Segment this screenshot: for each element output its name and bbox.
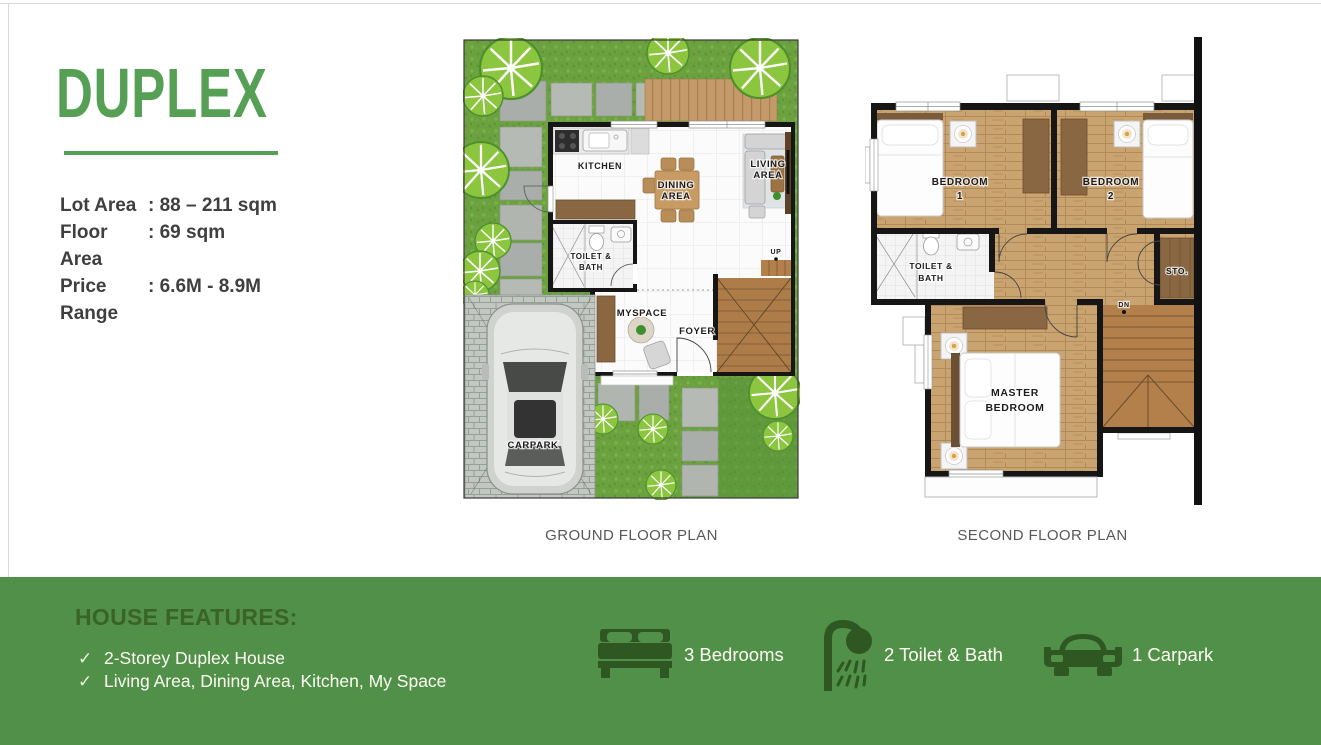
check-icon: ✓ (78, 647, 104, 670)
room-label-toilet: BATH (579, 263, 603, 272)
room-label-dn: DN (1118, 302, 1129, 309)
carpark-area (465, 295, 595, 498)
spec-list: Lot Area : 88 – 211 sqm Floor Area : 69 … (60, 192, 277, 327)
feature-item-label: Living Area, Dining Area, Kitchen, My Sp… (104, 670, 446, 693)
features-heading: HOUSE FEATURES: (75, 604, 298, 631)
room-label-dining: AREA (661, 191, 690, 202)
room-label-storage: STO. (1166, 266, 1188, 276)
spec-value: : 6.6M - 8.9M (148, 273, 261, 327)
spec-label: Floor Area (60, 219, 148, 273)
slide-left-border (8, 3, 9, 577)
room-label-toilet: BATH (918, 273, 943, 283)
room-label-toilet: TOILET & (909, 261, 952, 271)
spec-value: : 88 – 211 sqm (148, 192, 277, 219)
ground-floor-plan: KITCHEN DINING AREA LIVING AREA TOILET &… (463, 38, 800, 500)
room-label-myspace: MYSPACE (617, 308, 667, 319)
car-icon (1044, 628, 1122, 678)
spec-row-price-range: Price Range : 6.6M - 8.9M (60, 273, 277, 327)
feature-item: ✓ Living Area, Dining Area, Kitchen, My … (78, 670, 446, 693)
slide-top-border (0, 3, 1321, 4)
party-wall (1194, 37, 1202, 505)
spec-row-floor-area: Floor Area : 69 sqm (60, 219, 277, 273)
brochure-slide: { "panel": { "title": "DUPLEX", "specs":… (0, 0, 1321, 745)
room-label-living: AREA (753, 170, 782, 181)
second-floor-plan: BEDROOM 1 BEDROOM 2 TOILET & BATH STO. D… (865, 35, 1210, 510)
room-label-bedroom1: BEDROOM (932, 177, 988, 188)
room-label-bedroom2: BEDROOM (1083, 177, 1139, 188)
stat-carpark: 1 Carpark (1132, 644, 1213, 666)
room-label-master: BEDROOM (985, 402, 1044, 414)
spec-row-lot-area: Lot Area : 88 – 211 sqm (60, 192, 277, 219)
room-label-living: LIVING (750, 159, 785, 170)
feature-item-label: 2-Storey Duplex House (104, 647, 285, 670)
room-label-carpark: CARPARK (508, 440, 559, 451)
check-icon: ✓ (78, 670, 104, 693)
page-title: DUPLEX (56, 58, 268, 128)
ground-floor-caption: GROUND FLOOR PLAN (463, 527, 800, 544)
spec-label: Price Range (60, 273, 148, 327)
car-top-view (482, 304, 588, 494)
spec-label: Lot Area (60, 192, 148, 219)
room-label-dining: DINING (658, 180, 695, 191)
stat-bedrooms: 3 Bedrooms (684, 644, 784, 666)
room-label-kitchen: KITCHEN (578, 161, 622, 171)
stat-toilet-bath: 2 Toilet & Bath (884, 644, 1003, 666)
title-underline (64, 151, 278, 155)
shower-icon (820, 617, 876, 693)
spec-value: : 69 sqm (148, 219, 225, 273)
feature-item: ✓ 2-Storey Duplex House (78, 647, 285, 670)
room-label-bedroom1: 1 (957, 191, 963, 202)
second-floor-caption: SECOND FLOOR PLAN (870, 527, 1215, 544)
room-label-up: UP (771, 249, 782, 256)
room-label-master: MASTER (991, 387, 1039, 399)
room-label-foyer: FOYER (679, 326, 715, 337)
room-label-bedroom2: 2 (1108, 191, 1114, 202)
bed-icon (598, 629, 672, 679)
room-label-toilet: TOILET & (570, 252, 611, 261)
